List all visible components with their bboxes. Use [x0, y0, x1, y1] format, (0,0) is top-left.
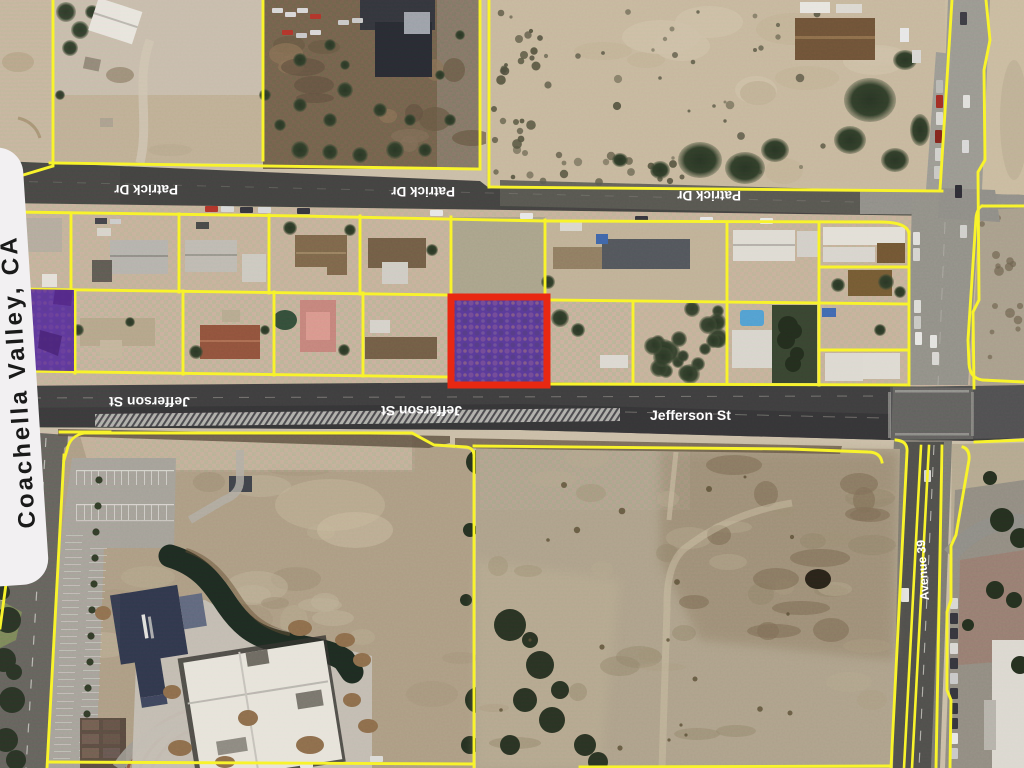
svg-text:Jefferson St: Jefferson St	[109, 394, 190, 410]
svg-text:Patrick Dr: Patrick Dr	[390, 184, 455, 199]
svg-text:Patrick Dr: Patrick Dr	[113, 182, 178, 197]
svg-text:Patrick Dr: Patrick Dr	[676, 188, 741, 203]
svg-text:Jefferson St: Jefferson St	[381, 403, 462, 419]
svg-text:Jefferson St: Jefferson St	[650, 407, 731, 423]
